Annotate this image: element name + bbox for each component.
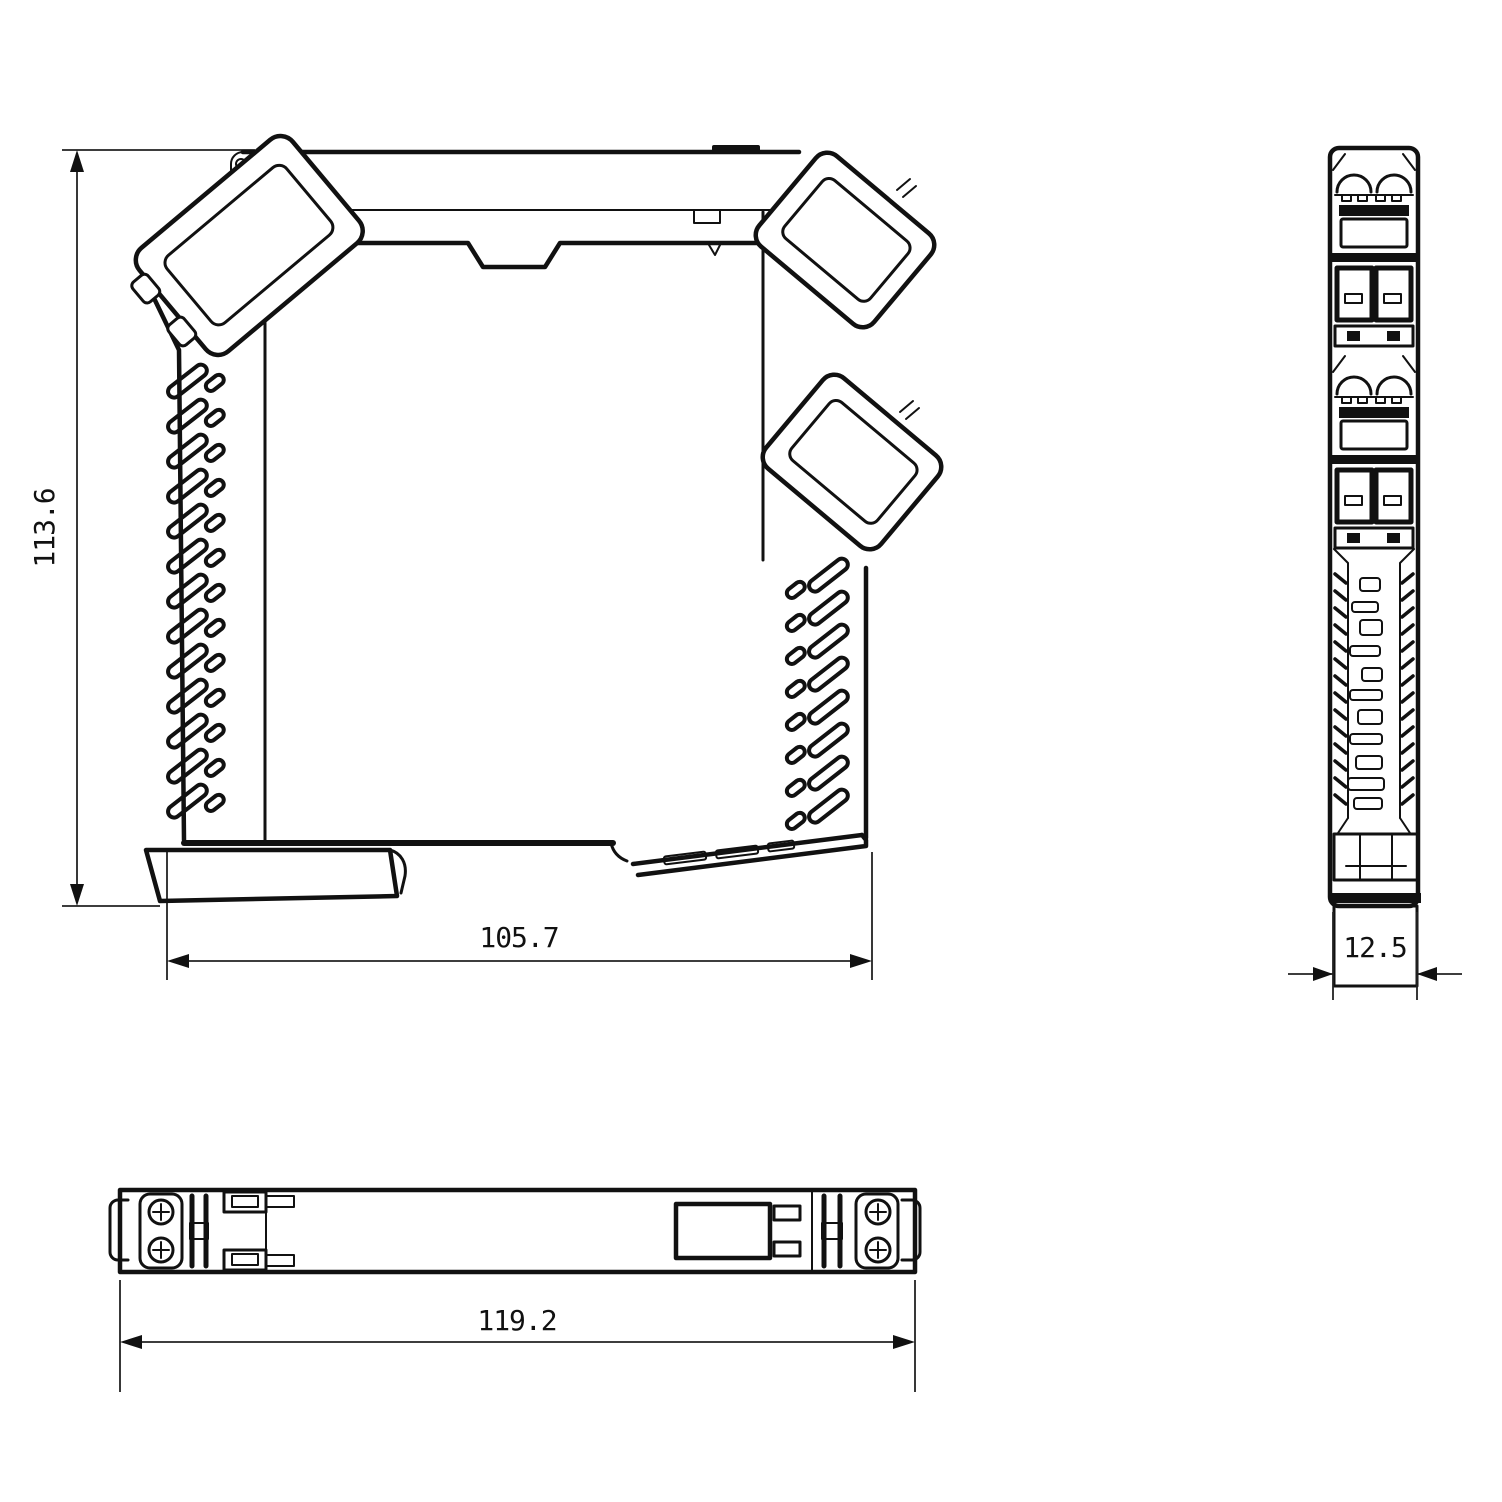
side-terminal-cluster bbox=[1331, 175, 1417, 346]
bottom-left-terminal bbox=[110, 1192, 294, 1270]
arrowhead-up bbox=[70, 150, 84, 172]
arrowhead-left bbox=[120, 1335, 142, 1349]
phillips-screw-icon bbox=[866, 1200, 890, 1224]
dim-width: 105.7 bbox=[167, 848, 872, 980]
side-view: 12.5 bbox=[1288, 148, 1462, 1000]
drawing-page: 113.6 105.7 bbox=[0, 0, 1502, 1502]
dim-depth-value: 12.5 bbox=[1343, 931, 1406, 964]
phillips-screw-icon bbox=[149, 1238, 173, 1262]
top-tab bbox=[712, 145, 760, 153]
terminal-block-top-right bbox=[750, 147, 941, 334]
bottom-window bbox=[676, 1204, 770, 1258]
front-view: 113.6 105.7 bbox=[28, 130, 947, 980]
bottom-view: 119.2 bbox=[110, 1190, 920, 1392]
arrowhead-left bbox=[1417, 967, 1437, 981]
dim-height-value: 113.6 bbox=[28, 488, 61, 567]
din-rail-foot bbox=[146, 850, 405, 901]
bottom-right-terminal bbox=[676, 1192, 920, 1270]
terminal-block-right-lower bbox=[757, 369, 948, 556]
side-indicator-windows bbox=[1348, 578, 1384, 809]
vent-band-left bbox=[166, 362, 226, 820]
dim-length: 119.2 bbox=[120, 1280, 915, 1392]
dim-length-value: 119.2 bbox=[477, 1304, 556, 1337]
dim-width-value: 105.7 bbox=[479, 921, 558, 954]
side-mid-body bbox=[1334, 549, 1414, 818]
phillips-screw-icon bbox=[866, 1238, 890, 1262]
arrowhead-left bbox=[167, 954, 189, 968]
din-module-dimension-drawing: 113.6 105.7 bbox=[0, 0, 1502, 1502]
terminal-block-top-left bbox=[116, 130, 369, 373]
vent-band-right bbox=[785, 556, 850, 831]
phillips-screw-icon bbox=[149, 1200, 173, 1224]
screw-pin bbox=[900, 401, 919, 419]
screw-pin bbox=[897, 179, 916, 197]
arrowhead-right bbox=[1313, 967, 1333, 981]
arrowhead-down bbox=[70, 884, 84, 906]
side-terminal-cluster bbox=[1331, 377, 1417, 548]
arrowhead-right bbox=[893, 1335, 915, 1349]
arrowhead-right bbox=[850, 954, 872, 968]
